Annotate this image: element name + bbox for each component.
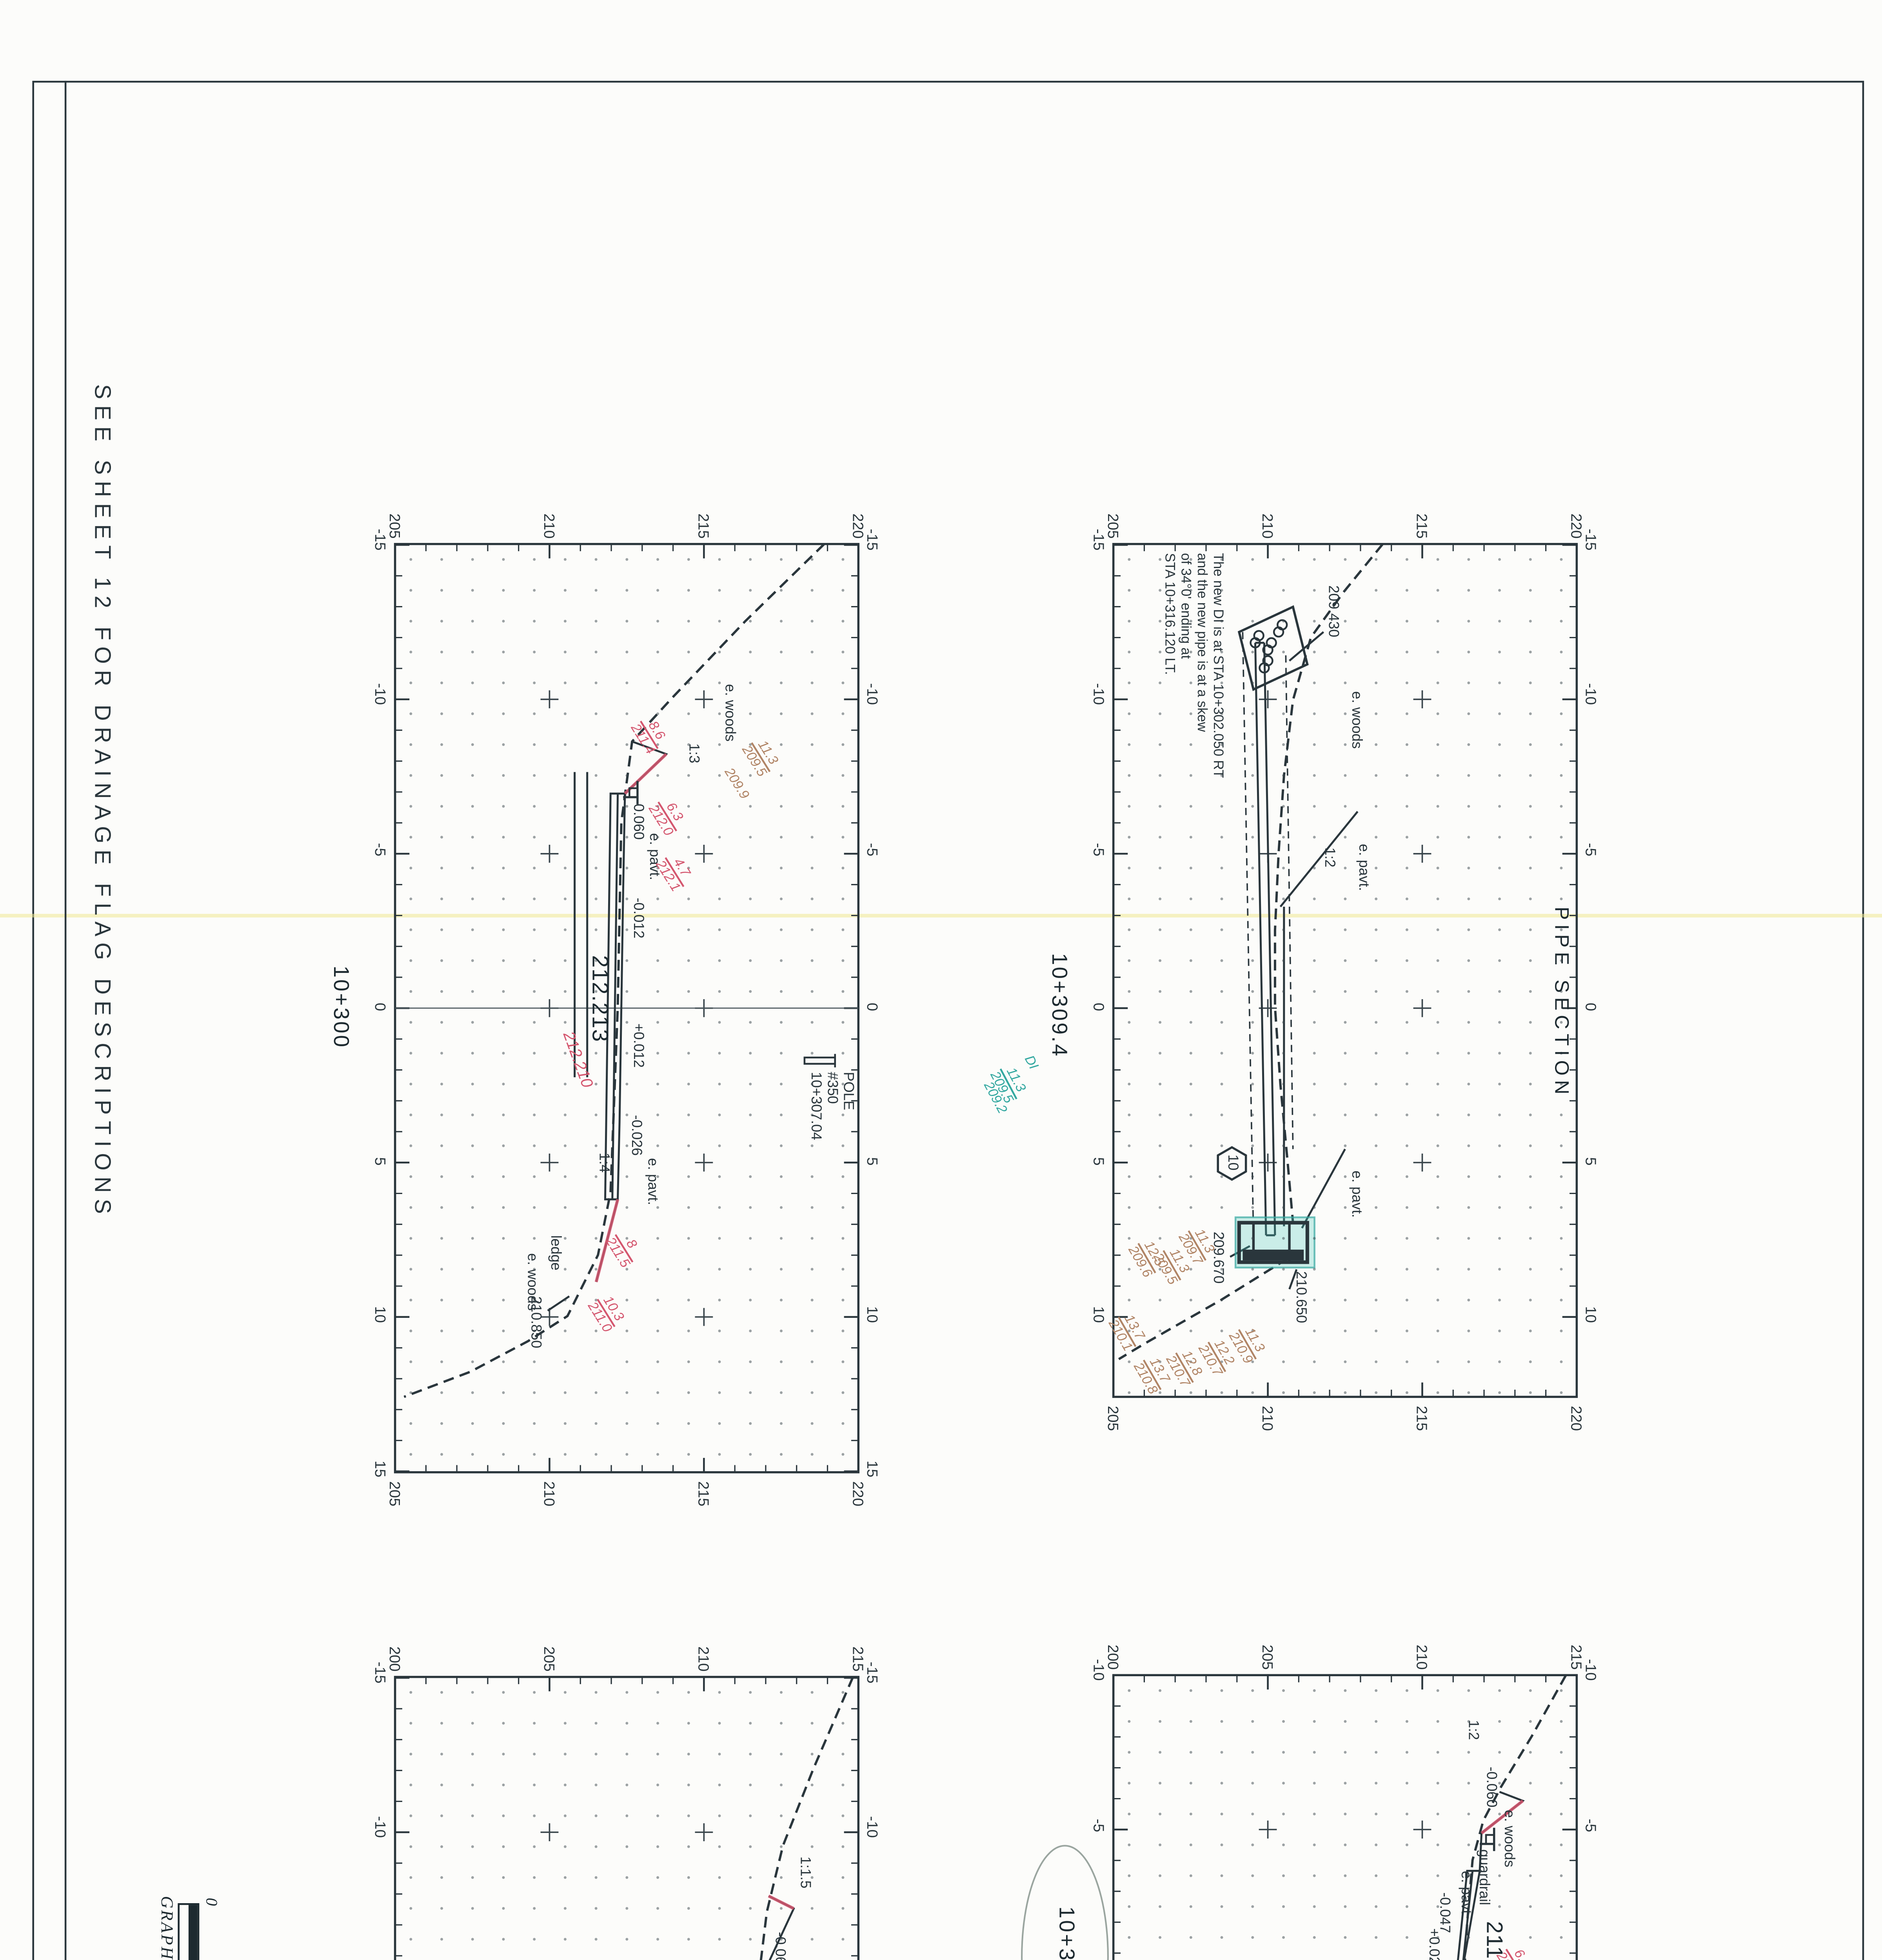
grid-dots [395,1677,859,1960]
offset-label: -10 [373,683,388,705]
annotation-b: 212.213 [588,955,610,1043]
elev-label: 205 [1260,1644,1275,1670]
annotation-l: +0.023 [1426,1928,1441,1960]
offset-label: -15 [1091,529,1106,550]
annotation-l: #350 [824,1072,839,1104]
annotation-l: e. pavt. [1349,1171,1363,1218]
elev-label: 215 [696,1481,711,1506]
offset-label: -5 [1583,843,1599,856]
elev-label: 210 [696,1646,711,1671]
annotation-l: +0.012 [630,1024,645,1068]
offset-label: -10 [865,683,880,705]
elev-label: 220 [1569,514,1584,539]
offset-label: -5 [1583,1819,1599,1832]
offset-label: 10 [1091,1306,1106,1323]
elev-label: 210 [541,1481,557,1506]
annotation-l: -0.026 [629,1115,643,1156]
annotation-l: e. woods [722,684,736,742]
offset-label: -10 [1091,683,1106,705]
station-label: 10+330 [1056,1906,1077,1960]
annotation-l: 1:4 [596,1152,611,1172]
elev-label: 220 [1569,1406,1584,1431]
annotation-l: -0.060 [772,1932,787,1960]
elev-label: 210 [1260,1406,1275,1431]
offset-label: -10 [373,1816,388,1838]
annotation-l: guardrail [1476,1849,1491,1906]
annotation-n: STA 10+316.120 LT. [1163,553,1176,675]
elev-label: 210 [1260,514,1275,539]
offset-label: -10 [1583,683,1599,705]
offset-label: 5 [1091,1157,1106,1165]
offset-label: -10 [1091,1659,1106,1681]
offset-label: -10 [1583,1659,1599,1681]
elev-label: 205 [541,1646,557,1671]
elev-label: 220 [850,1481,866,1506]
offset-label: -15 [865,1662,880,1683]
offset-label: -5 [865,843,880,856]
annotation-l: 210.850 [528,1296,543,1348]
elev-label: 210 [541,514,557,539]
offset-label: 10 [865,1306,880,1323]
station-label: 10+309.4 [1049,953,1070,1058]
offset-label: 0 [1583,1003,1599,1011]
offset-label: -15 [865,529,880,550]
station-label: 10+300 [331,965,352,1049]
annotation-n: of 34°0' ending at [1179,553,1192,659]
offset-label: 5 [865,1157,880,1165]
scanned-sheet: SEE SHEET 12 FOR DRAINAGE FLAG DESCRIPTI… [0,0,1882,1960]
elev-label: 205 [387,1481,402,1506]
drawing-sheet: SEE SHEET 12 FOR DRAINAGE FLAG DESCRIPTI… [0,0,1882,1960]
offset-label: 5 [1583,1157,1599,1165]
annotation-l: ledge [548,1235,562,1270]
annotation-l: 1:1.5 [797,1857,812,1889]
annotation-n: The new DI is at STA 10+302.050 RT [1211,553,1225,778]
drainage-flag-number: 10 [1225,1154,1239,1171]
elev-label: 205 [1105,1406,1121,1431]
offset-label: 0 [373,1003,388,1011]
offset-label: 10 [1583,1306,1599,1323]
offset-label: -15 [1583,529,1599,550]
annotation-l: POLE [840,1072,855,1110]
offset-label: -5 [373,843,388,856]
annotation-l: 1:3 [686,743,701,763]
offset-label: 0 [865,1003,880,1011]
annotation-l: 1:2 [1322,848,1336,867]
offset-label: 0 [1091,1003,1106,1011]
offset-label: -15 [373,1662,388,1683]
offset-label: 15 [865,1461,880,1477]
annotation-l: 10+307.04 [808,1072,823,1140]
annotation-l: 1:2 [1465,1720,1480,1740]
annotation-l: -0.047 [1437,1893,1451,1933]
offset-label: -15 [373,529,388,550]
annotation-l: e. pavt. [645,1158,659,1205]
elev-label: 215 [1414,1406,1430,1431]
elev-label: 215 [696,514,711,539]
annotation-l: 209.430 [1325,585,1340,637]
annotation-n: and the new pipe is at a skew [1195,553,1209,732]
offset-label: -5 [1091,843,1106,856]
elev-label: 215 [850,1646,866,1671]
grid-dots [395,544,859,1472]
annotation-l: 210.650 [1293,1271,1308,1323]
annotation-l: e. pavt. [1458,1871,1473,1918]
offset-label: 15 [373,1461,388,1477]
elev-label: 215 [1569,1644,1584,1670]
offset-label: -5 [1091,1819,1106,1832]
offset-label: 5 [373,1157,388,1165]
plot-title: PIPE SECTION [1550,907,1570,1099]
offset-label: -10 [865,1816,880,1838]
annotation-l: e. pavt. [1356,844,1370,891]
annotation-l: e. woods [1349,691,1363,749]
elev-label: 210 [1414,1644,1430,1670]
annotation-l: -0.060 [1483,1767,1498,1808]
elev-label: 220 [850,514,866,539]
offset-label: 10 [373,1306,388,1323]
annotation-l: -0.060 [630,799,645,840]
annotation-l: -0.012 [630,898,645,938]
elev-label: 215 [1414,514,1430,539]
annotation-l: e. woods [1501,1810,1516,1867]
